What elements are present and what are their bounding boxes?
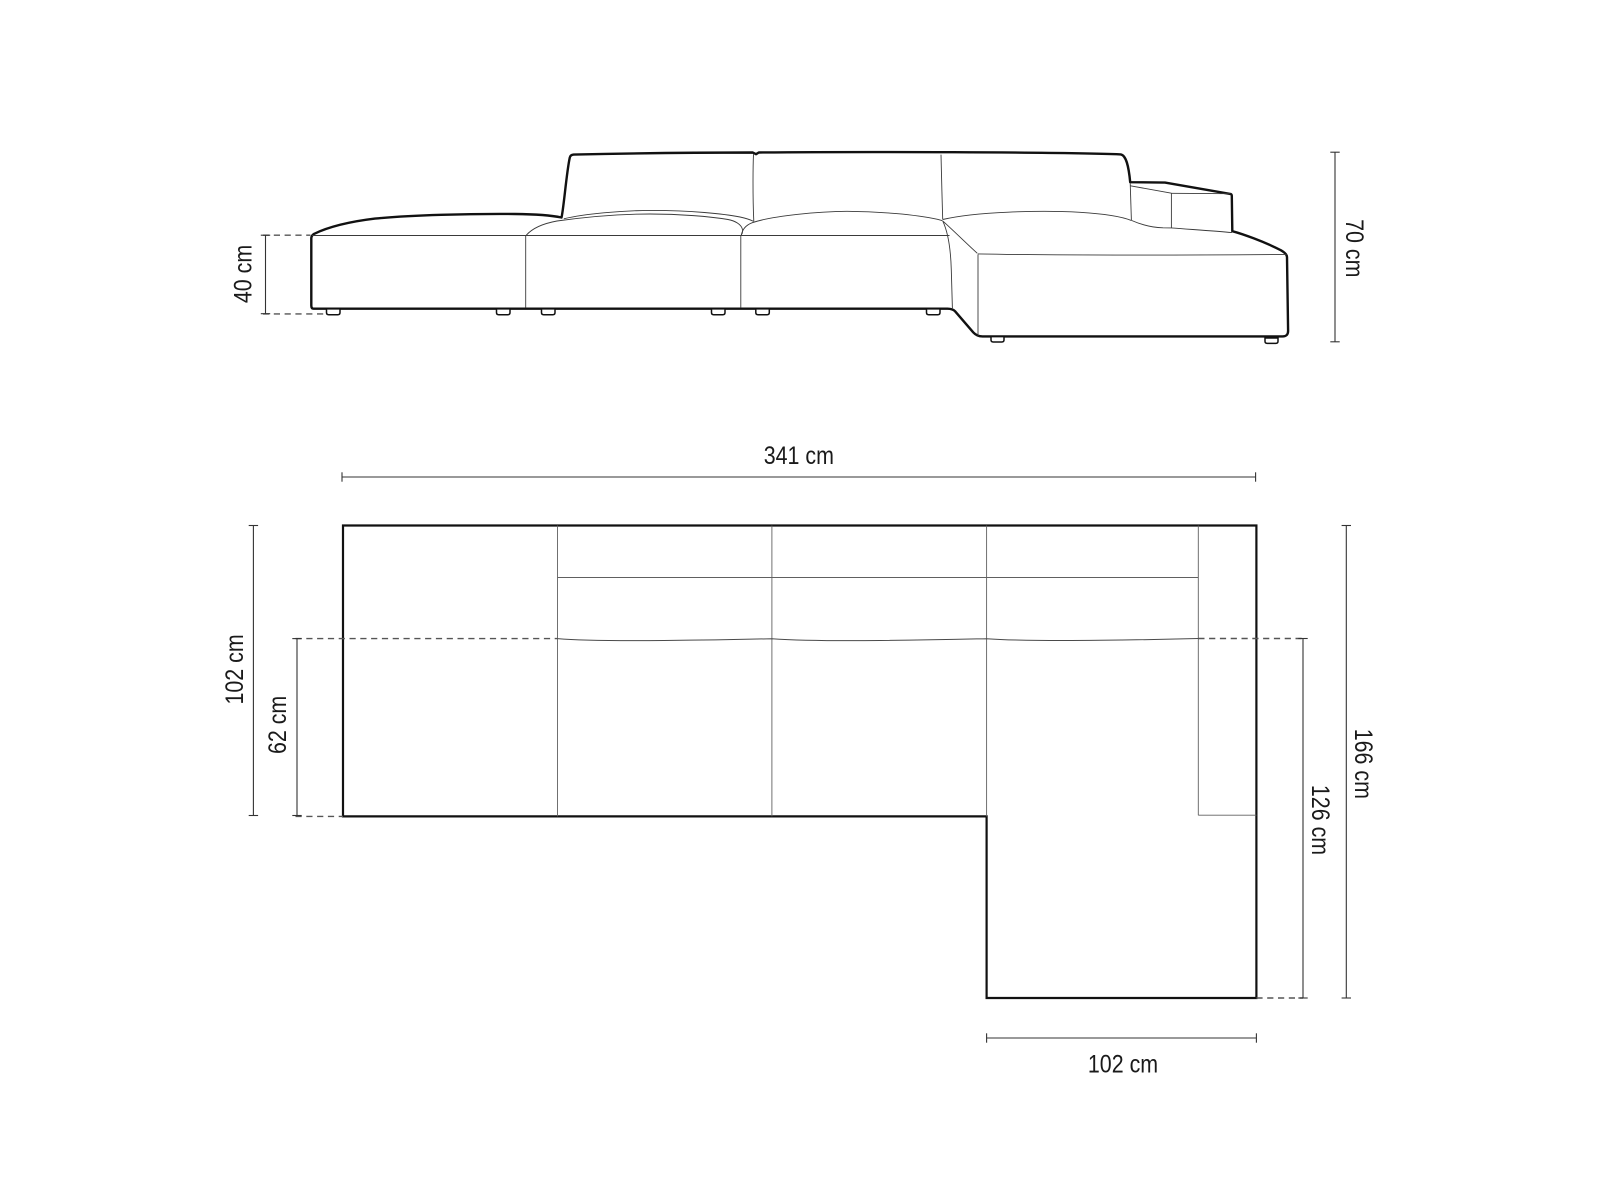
svg-text:126 cm: 126 cm [1307, 785, 1335, 855]
svg-text:341 cm: 341 cm [764, 441, 834, 469]
svg-text:102 cm: 102 cm [1088, 1050, 1158, 1078]
svg-text:166 cm: 166 cm [1350, 729, 1378, 799]
svg-text:40 cm: 40 cm [229, 245, 257, 303]
svg-text:70 cm: 70 cm [1340, 219, 1368, 277]
svg-text:102 cm: 102 cm [221, 634, 249, 704]
svg-text:62 cm: 62 cm [263, 696, 291, 754]
